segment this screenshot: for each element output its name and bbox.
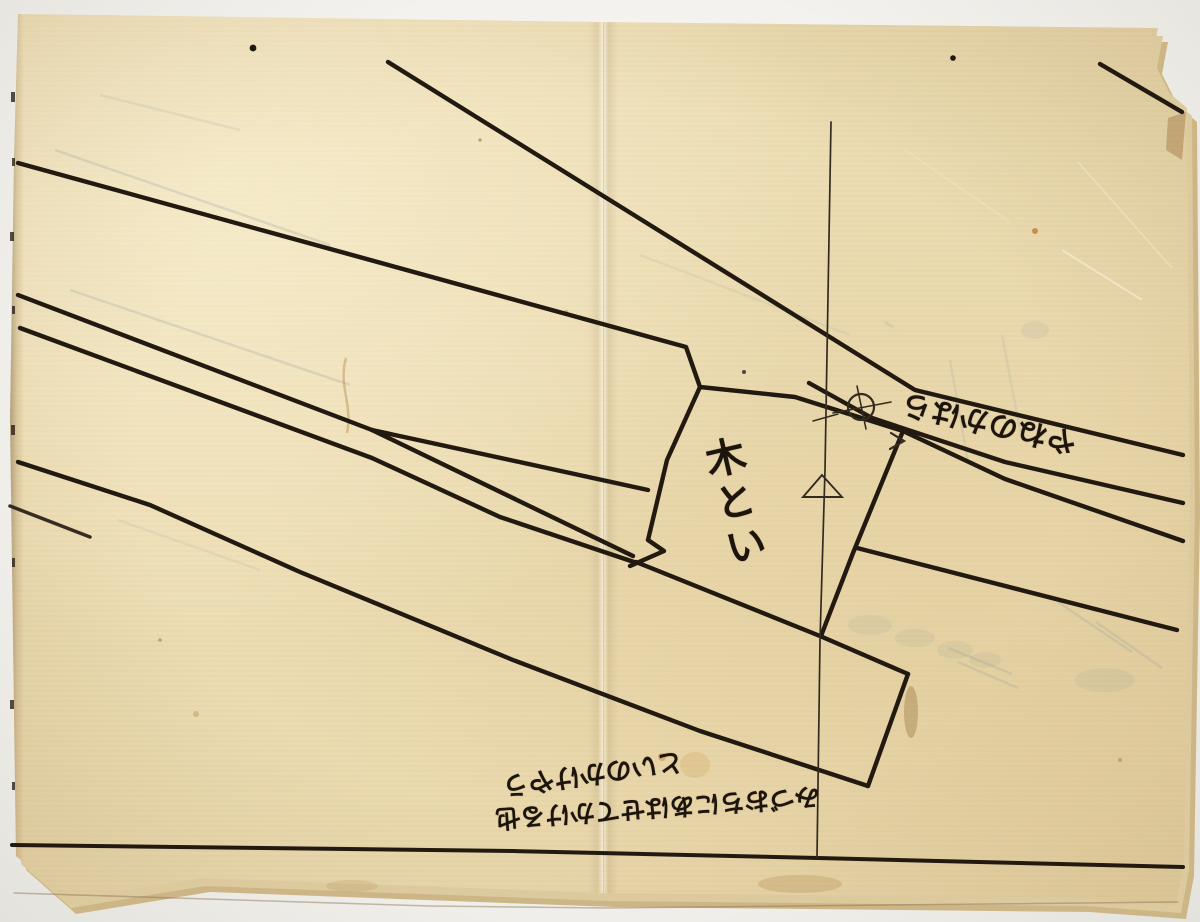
vertical-datum-line — [817, 122, 831, 857]
pencil-ghost-marks — [55, 95, 1162, 688]
drafting-marks — [803, 122, 904, 857]
fan-line-upper — [372, 430, 648, 490]
binding-speckles — [10, 92, 15, 790]
torn-corner-flap — [1166, 112, 1186, 160]
long-line-upper — [18, 295, 372, 430]
fan-line-continuation — [857, 548, 1177, 630]
box-right-edge — [821, 431, 903, 636]
beam-end-cut — [868, 674, 908, 786]
triangle-mark — [803, 475, 842, 497]
scanned-book-spread: 木とい やねのかはら といのかけやう みづおちにあはせてかける也 — [0, 0, 1200, 922]
edge-stub-line — [10, 506, 90, 537]
long-line-lower — [20, 328, 634, 562]
bottom-page-edge-line — [14, 893, 1178, 908]
fan-line-lower — [372, 430, 633, 556]
bottom-frame-line — [12, 845, 1183, 867]
corner-line — [1100, 64, 1182, 112]
paper-crease-marks — [905, 150, 1172, 300]
